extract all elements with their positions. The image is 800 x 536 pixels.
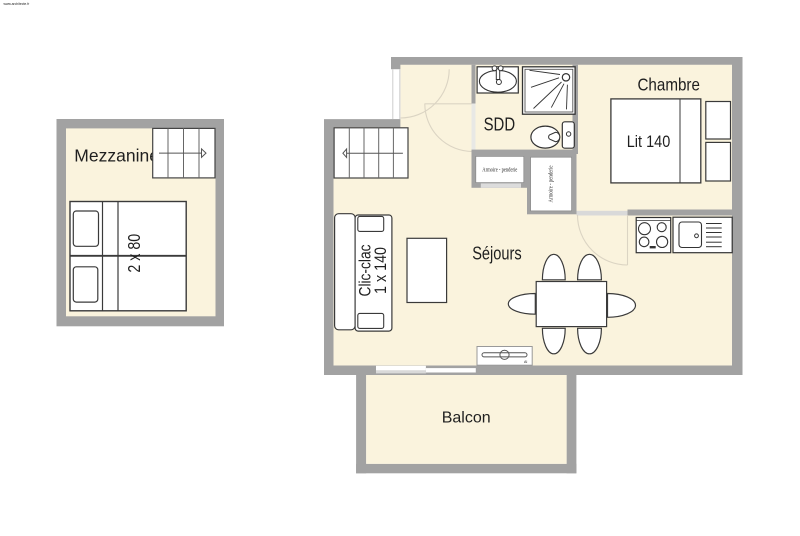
svg-text:Séjours: Séjours [472,243,522,264]
svg-text:www.architecte.fr: www.architecte.fr [4,2,31,6]
svg-text:Mezzanine: Mezzanine [74,145,159,165]
svg-text:2 x 80: 2 x 80 [124,234,144,273]
svg-text:SDD: SDD [484,114,515,134]
svg-text:AI: AI [524,360,527,364]
svg-text:Balcon: Balcon [442,409,491,426]
svg-text:Armoire - penderie: Armoire - penderie [482,167,517,174]
svg-text:Lit 140: Lit 140 [627,132,671,151]
svg-text:Armoire - penderie: Armoire - penderie [548,165,555,202]
svg-text:Chambre: Chambre [637,75,700,95]
svg-text:1 x 140: 1 x 140 [372,247,390,294]
